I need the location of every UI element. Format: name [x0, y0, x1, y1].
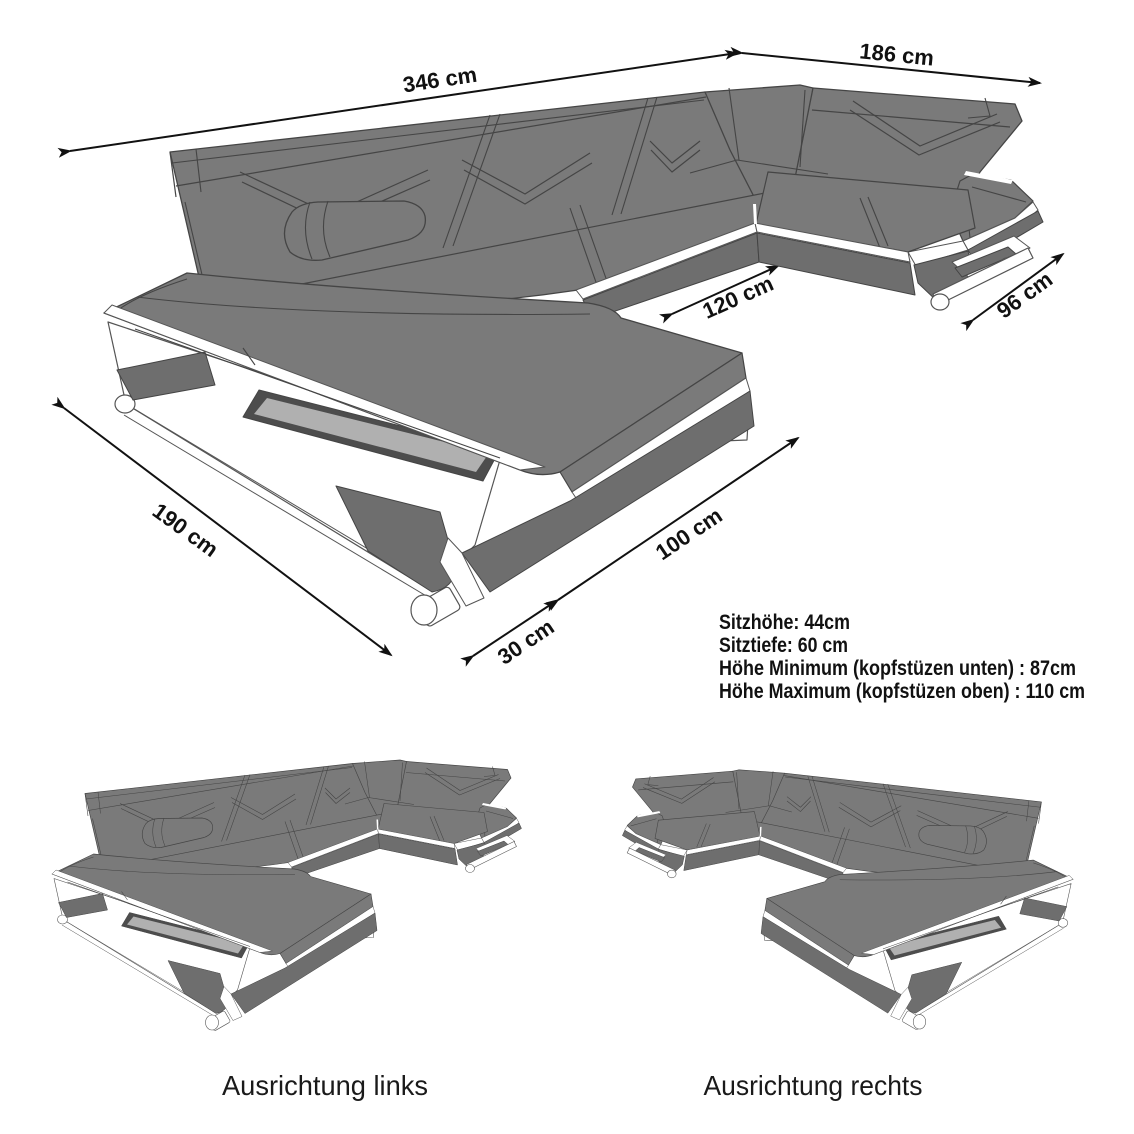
svg-text:Ausrichtung links: Ausrichtung links [222, 1070, 428, 1101]
svg-text:Ausrichtung rechts: Ausrichtung rechts [704, 1070, 923, 1101]
svg-text:30 cm: 30 cm [493, 614, 559, 670]
svg-text:Höhe Minimum (kopfstüzen unten: Höhe Minimum (kopfstüzen unten) : 87cm [719, 657, 1076, 680]
svg-text:Sitztiefe: 60 cm: Sitztiefe: 60 cm [719, 634, 848, 657]
svg-text:Höhe Maximum (kopfstüzen oben): Höhe Maximum (kopfstüzen oben) : 110 cm [719, 680, 1085, 703]
svg-text:Sitzhöhe: 44cm: Sitzhöhe: 44cm [719, 611, 850, 634]
svg-text:96 cm: 96 cm [992, 266, 1057, 323]
svg-text:190 cm: 190 cm [148, 498, 223, 562]
